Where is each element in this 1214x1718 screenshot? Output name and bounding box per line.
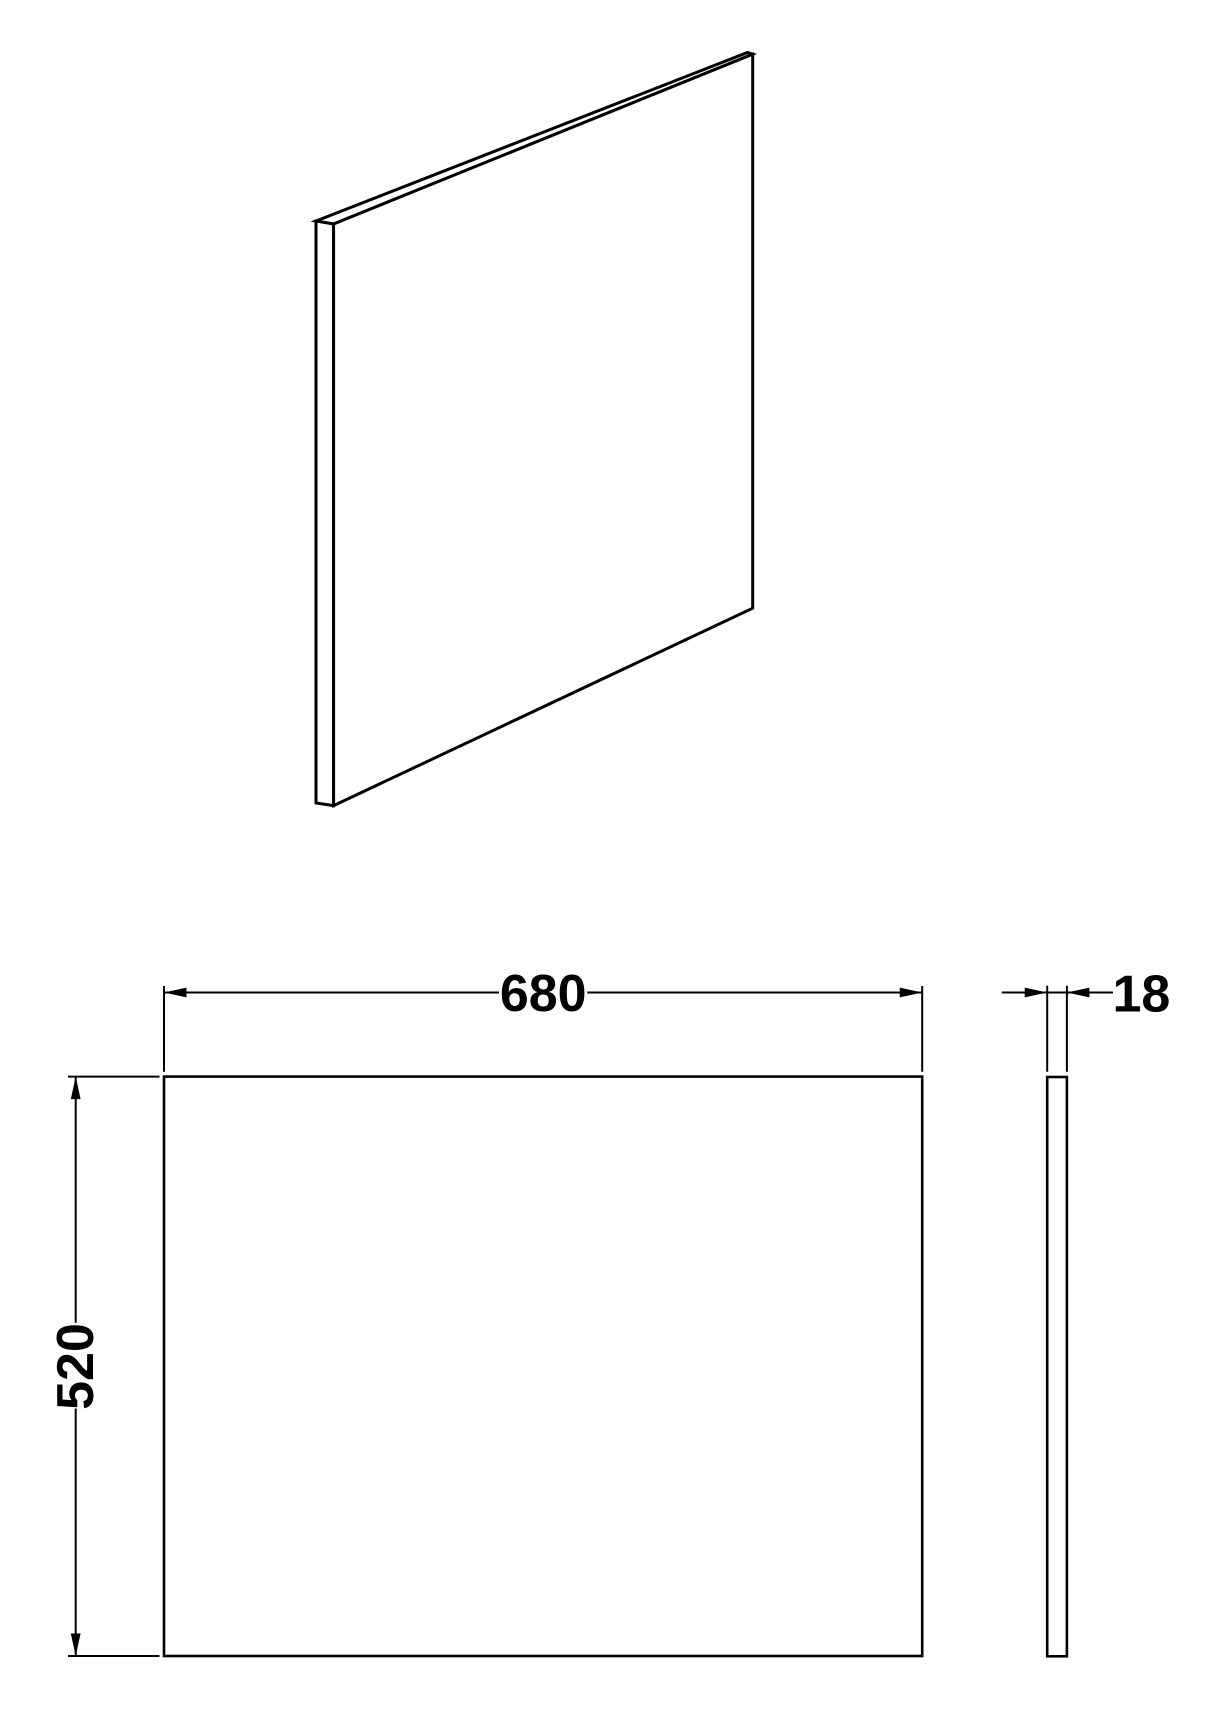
svg-text:680: 680 xyxy=(500,965,587,1023)
svg-text:18: 18 xyxy=(1113,965,1171,1023)
svg-text:520: 520 xyxy=(47,1323,105,1410)
